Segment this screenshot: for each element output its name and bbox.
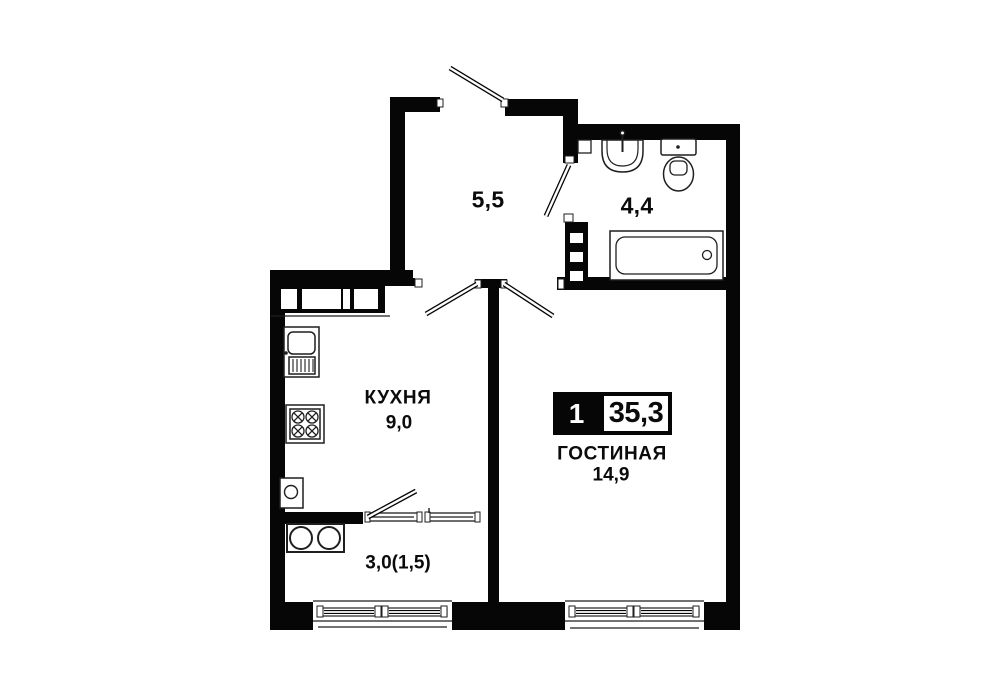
kitchen-area-label: 9,0 [386, 414, 412, 433]
kitchen-top-wall-step [407, 278, 415, 286]
balcony-area-label: 3,0(1,5) [365, 554, 430, 573]
right-exterior-wall [726, 140, 740, 630]
washing-machine-fixture [280, 478, 303, 508]
stove-fixture [286, 405, 324, 443]
floorplan-canvas: 5,5 4,4 КУХНЯ 9,0 1 35,3 ГОСТИНАЯ 14,9 3… [0, 0, 1006, 700]
hall-left-wall [390, 97, 405, 286]
entry-top-wall-right [505, 99, 578, 116]
balcony-window [313, 598, 452, 630]
balcony-unit-fixture [287, 524, 344, 552]
left-exterior-wall [270, 270, 285, 602]
balcony-inner-window [425, 508, 480, 522]
vent-shaft-block [271, 286, 390, 316]
entrance-door [450, 68, 503, 100]
balcony-door [365, 491, 422, 522]
balcony-partition-wall [285, 512, 363, 524]
toilet-fixture [661, 139, 696, 191]
bathroom-top-wall [578, 124, 740, 140]
kitchen-living-divider-wall [488, 286, 499, 602]
living-room-area-label: 14,9 [593, 466, 630, 485]
badge-total-area: 35,3 [600, 392, 672, 435]
living-room-name-label: ГОСТИНАЯ [557, 445, 667, 464]
bathroom-area-label: 4,4 [621, 195, 654, 218]
bathtub-fixture [610, 231, 723, 280]
kitchen-top-wall [270, 270, 413, 286]
towel-ladder-fixture [565, 222, 588, 285]
bathroom-corner-notch [578, 140, 591, 153]
badge-room-count: 1 [553, 392, 600, 435]
living-room-window [565, 598, 704, 632]
entry-top-wall-left [390, 97, 440, 112]
kitchen-name-label: КУХНЯ [365, 389, 432, 408]
floorplan-drawing [0, 0, 1006, 700]
hall-area-label: 5,5 [472, 189, 505, 212]
kitchen-door [426, 284, 477, 314]
apartment-summary-badge: 1 35,3 [553, 392, 672, 435]
living-room-door [504, 284, 553, 316]
kitchen-sink-fixture [284, 327, 319, 377]
bathroom-door [546, 165, 569, 216]
